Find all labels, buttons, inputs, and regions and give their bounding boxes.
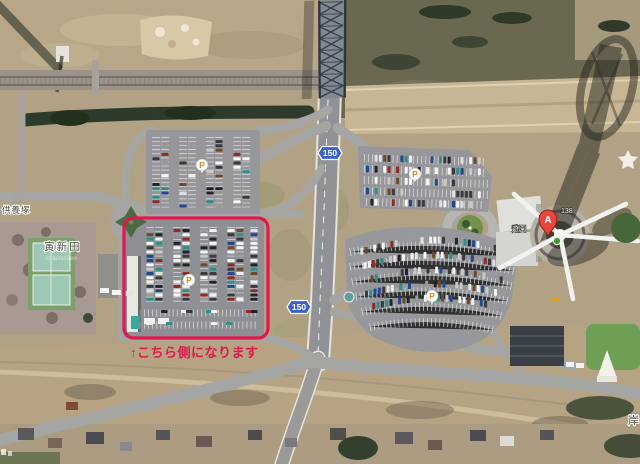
- place-label-edge-partial: 岸: [628, 414, 639, 427]
- yellow-vehicle: [552, 298, 559, 302]
- svg-text:P: P: [186, 275, 192, 285]
- place-label-torashinden-romaji: Torashinden: [44, 256, 77, 262]
- svg-text:150: 150: [292, 302, 306, 312]
- round-pavilion: [344, 292, 354, 302]
- place-label-kuyozuka: 供養塚: [2, 205, 31, 215]
- svg-text:P: P: [412, 169, 418, 179]
- tower-label-right: 138: [561, 208, 573, 215]
- parking-lot-east-fan: [345, 227, 518, 352]
- bus: [131, 316, 140, 329]
- svg-text:150: 150: [323, 148, 337, 158]
- svg-text:P: P: [199, 160, 205, 170]
- tower-label-left: 遊園: [512, 224, 526, 233]
- satellite-map[interactable]: ↑こちら側になります 150 150 P P P P A 寅新田 To: [0, 0, 640, 464]
- svg-text:P: P: [429, 291, 435, 301]
- annotation-note: ↑こちら側になります: [130, 345, 259, 360]
- railway-truss-bridge: [298, 0, 349, 99]
- svg-text:A: A: [544, 215, 551, 226]
- route-150-shield-north: 150: [318, 147, 342, 160]
- route-150-shield-south: 150: [287, 301, 311, 314]
- place-label-torashinden: 寅新田: [44, 240, 82, 253]
